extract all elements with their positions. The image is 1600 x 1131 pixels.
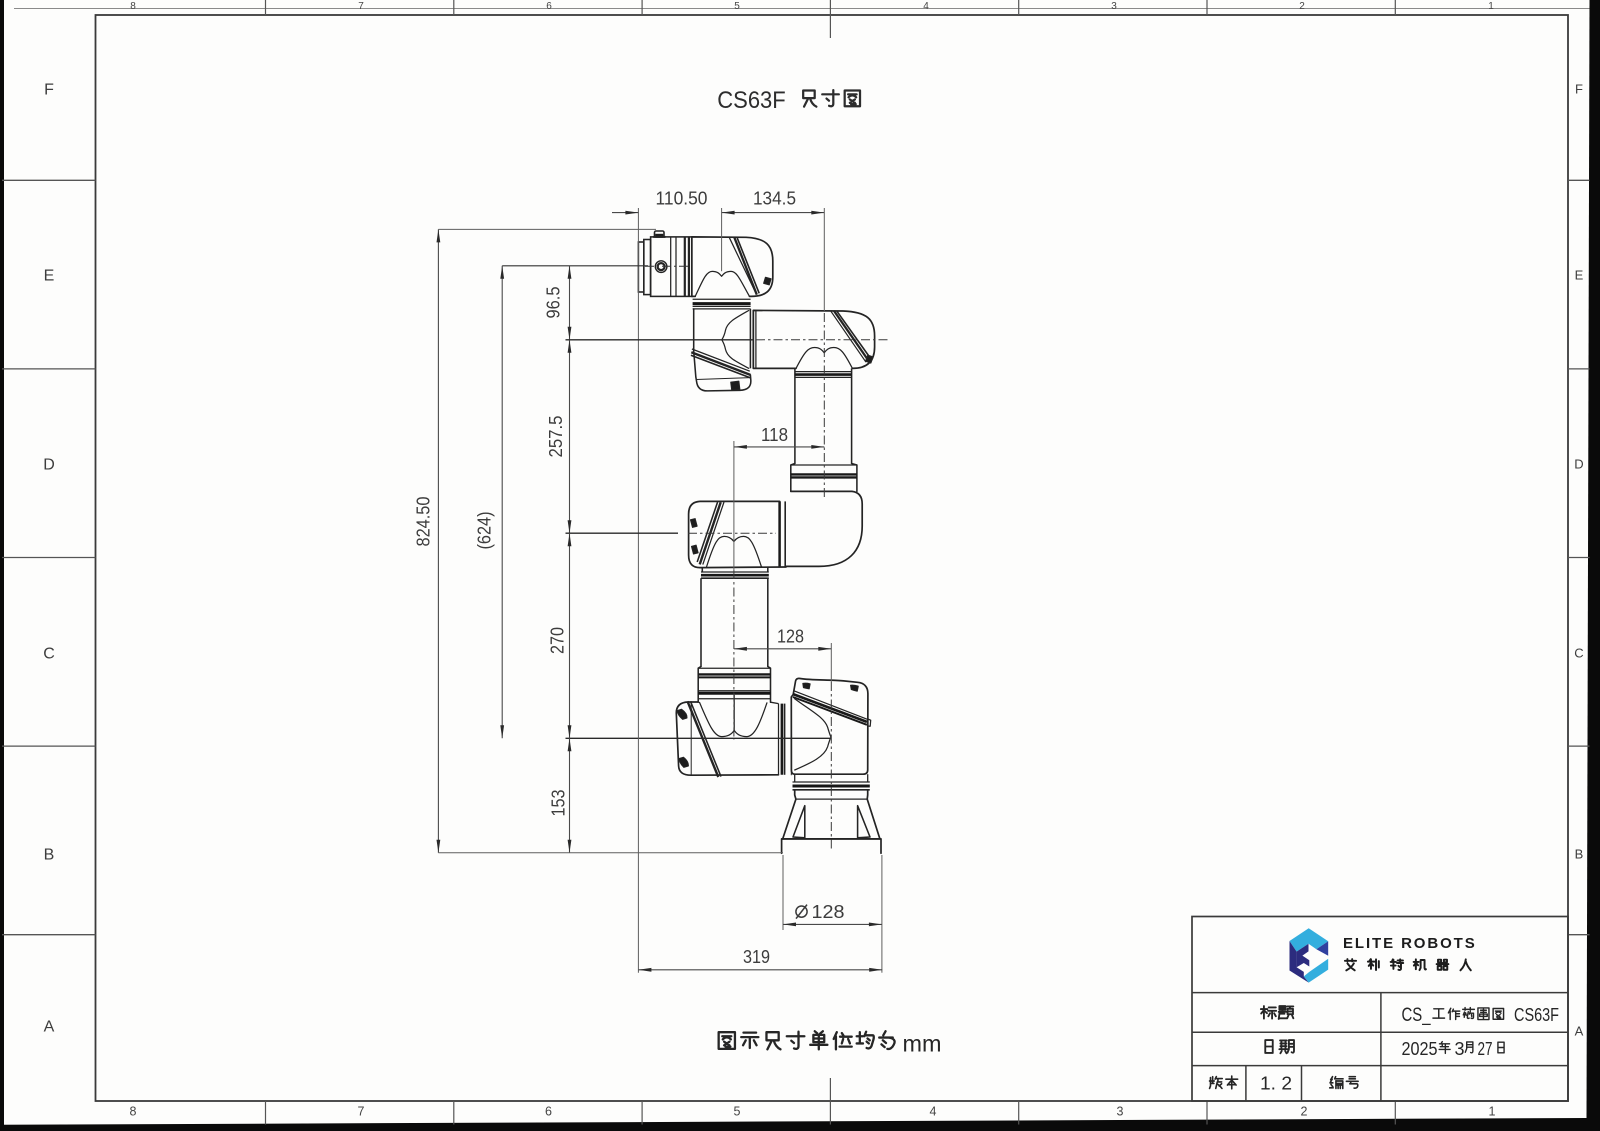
svg-text:6: 6 — [546, 1, 552, 12]
svg-text:824.50: 824.50 — [413, 497, 434, 547]
svg-text:1: 1 — [1489, 1105, 1496, 1119]
svg-text:2025: 2025 — [1402, 1039, 1438, 1059]
svg-text:B: B — [44, 847, 55, 864]
svg-text:153: 153 — [548, 790, 569, 817]
svg-text:3: 3 — [1117, 1105, 1124, 1119]
svg-text:319: 319 — [743, 946, 770, 967]
svg-text:5: 5 — [734, 1105, 741, 1119]
svg-text:7: 7 — [358, 1, 364, 12]
svg-text:3: 3 — [1455, 1039, 1465, 1059]
svg-text:3: 3 — [1111, 1, 1117, 12]
svg-text:8: 8 — [130, 1105, 137, 1119]
svg-text:(624): (624) — [474, 512, 495, 550]
svg-text:4: 4 — [930, 1105, 937, 1119]
svg-text:110.50: 110.50 — [656, 188, 708, 209]
svg-text:C: C — [1574, 646, 1583, 661]
svg-text:CS_: CS_ — [1402, 1005, 1431, 1026]
svg-text:257.5: 257.5 — [545, 416, 566, 458]
svg-text:4: 4 — [923, 1, 929, 12]
svg-text:E: E — [44, 268, 55, 285]
svg-text:8: 8 — [130, 1, 136, 12]
svg-text:5: 5 — [734, 1, 740, 12]
svg-text:B: B — [1575, 847, 1584, 862]
svg-text:128: 128 — [777, 626, 804, 647]
svg-text:96.5: 96.5 — [543, 287, 564, 319]
svg-text:mm: mm — [903, 1031, 942, 1057]
svg-text:128: 128 — [812, 901, 845, 922]
svg-text:F: F — [44, 82, 54, 99]
svg-text:CS63F: CS63F — [1514, 1005, 1559, 1025]
svg-text:ELITE ROBOTS: ELITE ROBOTS — [1343, 935, 1477, 952]
svg-text:E: E — [1575, 268, 1584, 283]
svg-text:27: 27 — [1478, 1039, 1493, 1059]
svg-text:118: 118 — [761, 424, 788, 445]
svg-text:270: 270 — [547, 627, 568, 654]
svg-text:1: 1 — [1488, 1, 1494, 12]
svg-text:C: C — [43, 646, 55, 663]
svg-text:2: 2 — [1299, 1, 1305, 12]
svg-text:134.5: 134.5 — [753, 188, 796, 209]
svg-text:F: F — [1575, 82, 1583, 97]
svg-text:7: 7 — [358, 1105, 365, 1119]
svg-text:A: A — [1575, 1024, 1584, 1039]
svg-text:6: 6 — [545, 1105, 552, 1119]
svg-text:CS63F: CS63F — [717, 87, 786, 114]
svg-text:A: A — [44, 1019, 55, 1036]
svg-text:D: D — [43, 457, 55, 474]
svg-text:D: D — [1574, 457, 1583, 472]
svg-text:1. 2: 1. 2 — [1260, 1073, 1292, 1094]
svg-text:2: 2 — [1301, 1105, 1308, 1119]
